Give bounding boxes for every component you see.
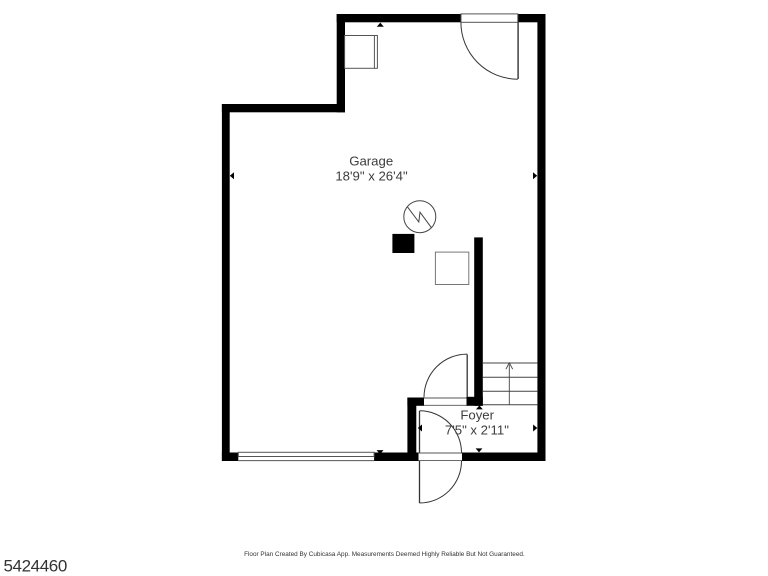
svg-text:18'9" x 26'4": 18'9" x 26'4" (335, 168, 408, 183)
svg-text:Foyer: Foyer (460, 407, 494, 422)
svg-text:Floor Plan Created By Cubicasa: Floor Plan Created By Cubicasa App. Meas… (244, 551, 525, 558)
svg-text:7'5" x 2'11": 7'5" x 2'11" (445, 422, 509, 437)
svg-text:Garage: Garage (349, 153, 393, 168)
svg-text:5424460: 5424460 (4, 557, 67, 576)
